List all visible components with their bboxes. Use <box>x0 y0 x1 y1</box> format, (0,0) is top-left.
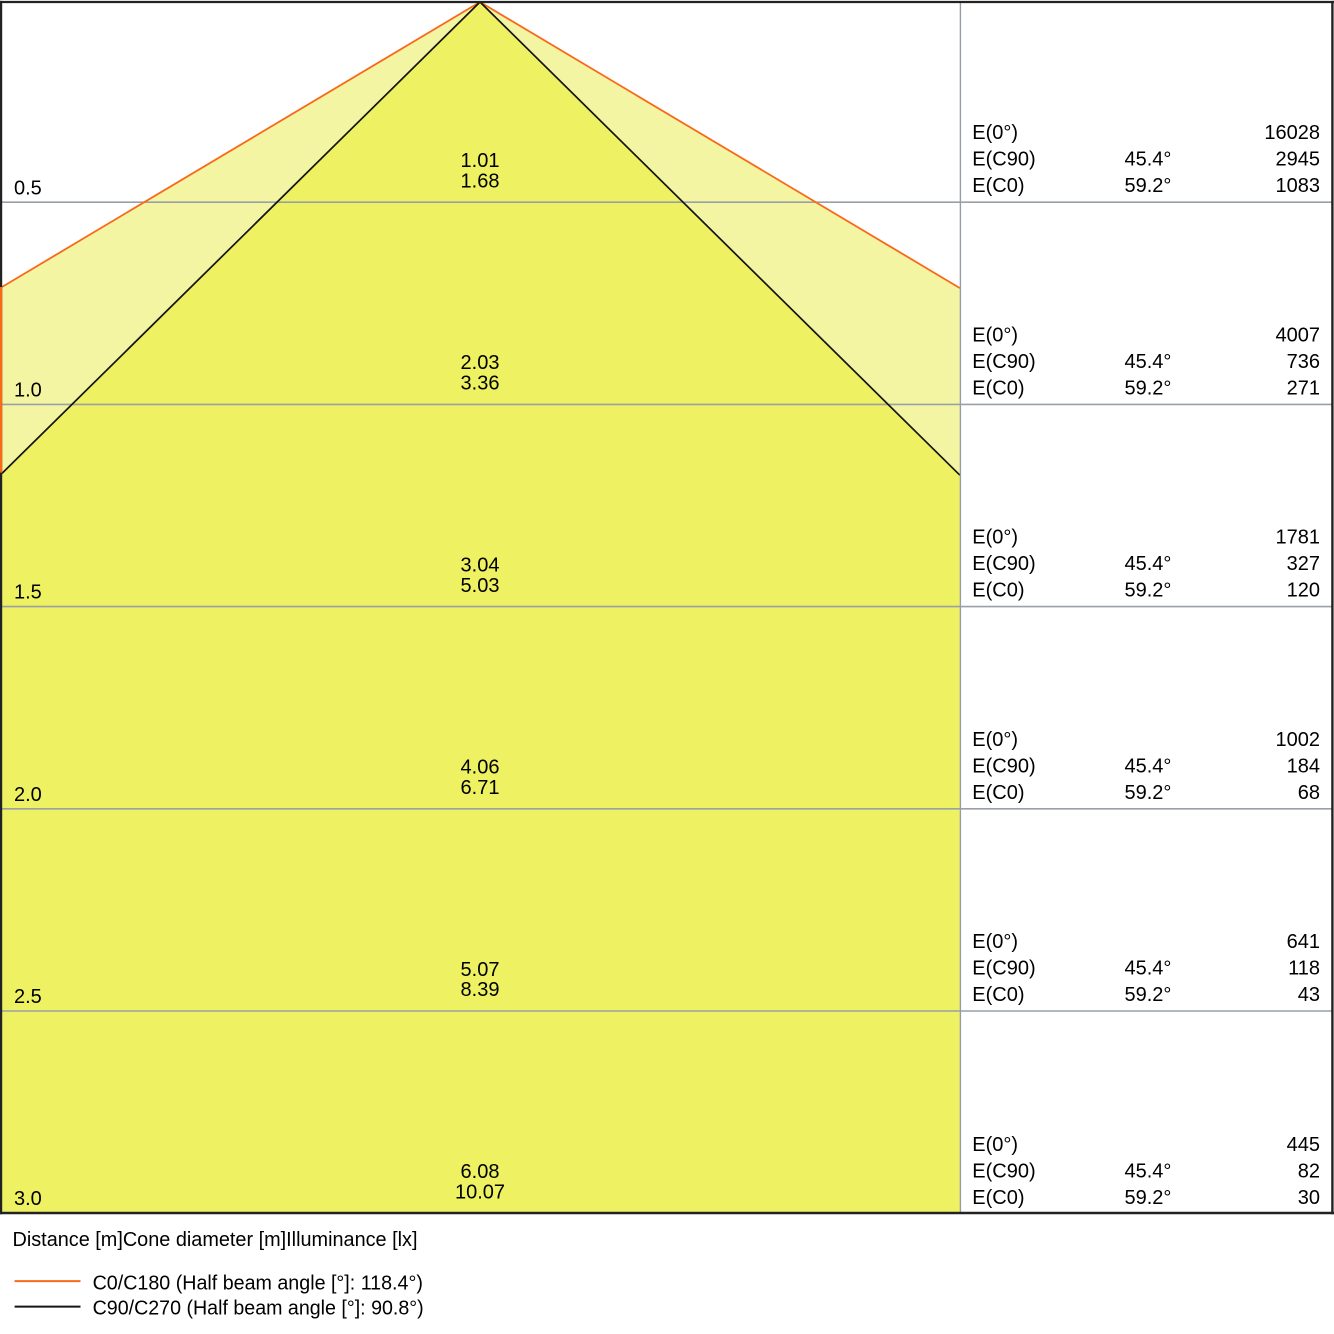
svg-text:1.01: 1.01 <box>461 150 500 172</box>
svg-text:59.2°: 59.2° <box>1124 782 1171 804</box>
svg-text:10.07: 10.07 <box>455 1181 505 1203</box>
svg-text:C90/C270 (Half beam angle [°]:: C90/C270 (Half beam angle [°]: 90.8°) <box>93 1298 424 1320</box>
svg-text:E(C0): E(C0) <box>972 782 1024 804</box>
svg-text:4007: 4007 <box>1276 324 1321 346</box>
svg-text:184: 184 <box>1287 755 1320 777</box>
svg-text:1781: 1781 <box>1276 527 1321 549</box>
svg-text:2.0: 2.0 <box>14 784 42 806</box>
svg-text:1083: 1083 <box>1276 175 1321 197</box>
svg-text:E(0°): E(0°) <box>972 1134 1018 1156</box>
svg-text:68: 68 <box>1298 782 1320 804</box>
svg-text:1002: 1002 <box>1276 729 1321 751</box>
svg-text:45.4°: 45.4° <box>1124 958 1171 980</box>
svg-text:E(C90): E(C90) <box>972 351 1035 373</box>
svg-text:327: 327 <box>1287 553 1320 575</box>
svg-text:3.0: 3.0 <box>14 1188 42 1210</box>
svg-text:120: 120 <box>1287 580 1320 602</box>
svg-text:59.2°: 59.2° <box>1124 377 1171 399</box>
svg-text:2.5: 2.5 <box>14 986 42 1008</box>
svg-text:45.4°: 45.4° <box>1124 1161 1171 1183</box>
svg-text:E(C90): E(C90) <box>972 149 1035 171</box>
svg-text:E(C90): E(C90) <box>972 755 1035 777</box>
svg-text:E(0°): E(0°) <box>972 527 1018 549</box>
svg-text:E(0°): E(0°) <box>972 122 1018 144</box>
svg-text:5.03: 5.03 <box>461 575 500 597</box>
svg-text:E(C0): E(C0) <box>972 580 1024 602</box>
svg-text:45.4°: 45.4° <box>1124 149 1171 171</box>
svg-text:59.2°: 59.2° <box>1124 175 1171 197</box>
svg-text:E(0°): E(0°) <box>972 729 1018 751</box>
svg-text:3.36: 3.36 <box>461 373 500 395</box>
svg-text:Distance [m]Cone diameter [m]I: Distance [m]Cone diameter [m]Illuminance… <box>13 1229 418 1251</box>
svg-text:30: 30 <box>1298 1187 1320 1209</box>
svg-text:2.03: 2.03 <box>461 352 500 374</box>
svg-text:1.0: 1.0 <box>14 380 42 402</box>
svg-text:1.5: 1.5 <box>14 582 42 604</box>
svg-text:E(C90): E(C90) <box>972 553 1035 575</box>
svg-text:E(C0): E(C0) <box>972 175 1024 197</box>
svg-text:43: 43 <box>1298 984 1320 1006</box>
svg-text:59.2°: 59.2° <box>1124 984 1171 1006</box>
svg-text:E(C0): E(C0) <box>972 377 1024 399</box>
svg-text:E(C0): E(C0) <box>972 1187 1024 1209</box>
svg-text:45.4°: 45.4° <box>1124 351 1171 373</box>
svg-text:6.71: 6.71 <box>461 777 500 799</box>
svg-text:3.04: 3.04 <box>461 554 500 576</box>
svg-text:2945: 2945 <box>1276 149 1321 171</box>
svg-text:59.2°: 59.2° <box>1124 1187 1171 1209</box>
svg-text:59.2°: 59.2° <box>1124 580 1171 602</box>
svg-text:8.39: 8.39 <box>461 979 500 1001</box>
svg-text:118: 118 <box>1288 958 1320 980</box>
svg-text:1.68: 1.68 <box>461 170 500 192</box>
svg-text:445: 445 <box>1287 1134 1320 1156</box>
svg-text:0.5: 0.5 <box>14 177 42 199</box>
svg-text:5.07: 5.07 <box>461 959 500 981</box>
svg-text:271: 271 <box>1287 377 1320 399</box>
svg-text:E(C90): E(C90) <box>972 1161 1035 1183</box>
svg-text:E(C90): E(C90) <box>972 958 1035 980</box>
svg-text:6.08: 6.08 <box>461 1161 500 1183</box>
svg-text:E(0°): E(0°) <box>972 931 1018 953</box>
svg-text:C0/C180 (Half beam angle [°]:: C0/C180 (Half beam angle [°]: 118.4°) <box>93 1272 423 1294</box>
svg-text:16028: 16028 <box>1264 122 1320 144</box>
svg-text:82: 82 <box>1298 1161 1320 1183</box>
svg-text:45.4°: 45.4° <box>1124 553 1171 575</box>
svg-text:4.06: 4.06 <box>461 757 500 779</box>
svg-text:E(0°): E(0°) <box>972 324 1018 346</box>
svg-text:45.4°: 45.4° <box>1124 755 1171 777</box>
svg-text:E(C0): E(C0) <box>972 984 1024 1006</box>
svg-text:736: 736 <box>1287 351 1320 373</box>
svg-text:641: 641 <box>1287 931 1320 953</box>
